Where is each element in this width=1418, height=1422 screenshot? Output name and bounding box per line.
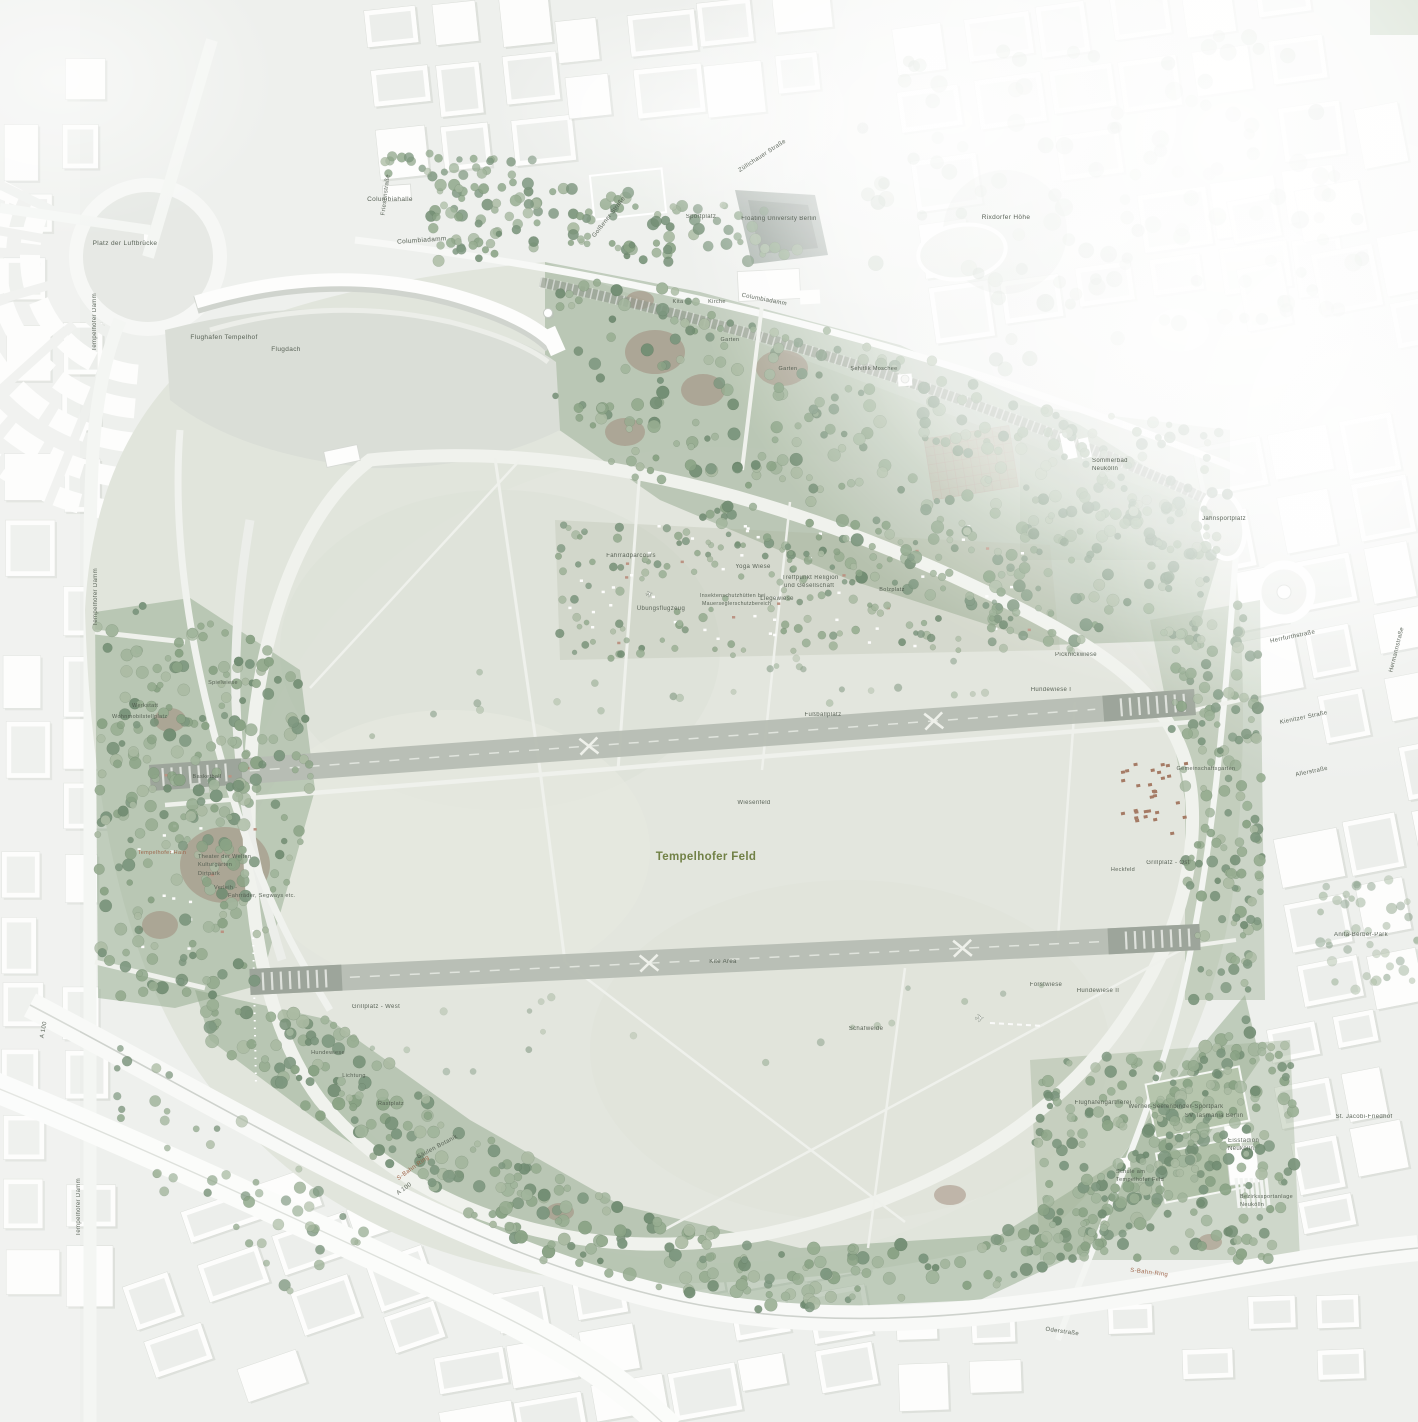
map-label: Wohnmobilstellplatz [112, 714, 167, 720]
map-label: Spielwiese [208, 680, 238, 686]
map-label: St. Jacobi-Friedhof [1335, 1114, 1392, 1120]
map-label: Rastplatz [378, 1101, 404, 1107]
map-label: Yoga Wiese [735, 564, 771, 570]
map-label: Flughafengärtnerei [1075, 1100, 1132, 1106]
map-label: Platz der Luftbrücke [93, 240, 158, 247]
map-label: Kite Area [709, 959, 737, 965]
map-label: Dirtpark [198, 871, 220, 877]
map-label: Bolzplatz [879, 587, 904, 593]
map-label: Fußballplatz [805, 712, 842, 718]
map-label: Sportplatz [686, 214, 717, 220]
map-label: Anita-Berber-Park [1334, 932, 1389, 938]
map-label: Forstwiese [1030, 982, 1063, 988]
map-label: Mauerseglerschutzbereich [702, 601, 771, 607]
map-label: Garten [721, 337, 740, 343]
map-label: Bezirkssportanlage [1240, 1194, 1293, 1200]
map-label: Flugdach [271, 346, 301, 353]
map-label: Flughafen Tempelhof [190, 334, 257, 341]
map-label: Kirche [708, 299, 726, 305]
map-label: Wiesenfeld [737, 800, 770, 806]
map-label: und Gesellschaft [784, 583, 834, 589]
map-label: Treffpunkt Religion [782, 575, 839, 581]
map-label: Floating University Berlin [741, 216, 816, 222]
map-label: Verleih - [214, 885, 237, 891]
map-label: Werner-Seelenbinder-Sportpark [1128, 1104, 1224, 1110]
map-label: Garten [779, 366, 798, 372]
map-label: Grillplatz - West [352, 1004, 400, 1010]
map-label: Picknickwiese [1055, 652, 1097, 658]
location-marker-icon [544, 309, 553, 318]
map-label: Hundewiese [311, 1050, 345, 1056]
map-label: Rixdorfer Höhe [982, 214, 1031, 221]
map-label: Fahrräder, Segways etc. [228, 893, 296, 899]
map-label: Tempelhofer Damm [93, 568, 99, 626]
map-label: Theater der Welten [198, 854, 251, 860]
map-label: Lichtung [342, 1073, 366, 1079]
map-label: Tempelhofer Feld [1116, 1177, 1164, 1183]
map-label: Grillplatz - Ost [1146, 860, 1190, 866]
map-label: Neukölln [1228, 1146, 1254, 1152]
map-canvas: Platz der LuftbrückeColumbiahalleTempelh… [0, 0, 1418, 1422]
map-label: Kita [673, 299, 684, 305]
map-label: Basketball [193, 774, 222, 780]
map-label: Neukölln [1240, 1202, 1264, 1208]
map-label: Fahrradparcours [606, 553, 656, 559]
airplane-icon: ✈ [974, 1012, 985, 1026]
map-label: Gemeinschaftsgarten [1177, 766, 1236, 772]
map-label: SV Tasmania Berlin [1185, 1113, 1244, 1119]
map-label: Hundewiese I [1031, 687, 1072, 693]
map-label: Schule am [1116, 1169, 1145, 1175]
map-label: Columbiahalle [367, 196, 413, 203]
map-label: Jahnsportplatz [1202, 516, 1246, 522]
map-label: Werkstatt [132, 703, 158, 709]
map-label: Hundewiese II [1077, 988, 1120, 994]
map-label: Neukölln [1092, 466, 1118, 472]
map-label: Tempelhofer Damm [92, 293, 98, 351]
map-label: Şehitlik Moschee [850, 366, 897, 372]
map-label: Tempelhofer Damm [76, 1178, 82, 1236]
map-label: Übungsflugzeug [637, 605, 685, 612]
map-label: Tempelhofer Feld [656, 851, 757, 863]
map-label: Heckfeld [1111, 867, 1135, 873]
map-label: Sommerbad [1092, 458, 1128, 464]
map-label: Eisstadion [1228, 1138, 1259, 1144]
map-label: Schafweide [849, 1026, 884, 1032]
map-label: Kulturgärten [198, 862, 232, 868]
map-label: Insektenschutzhütten bei [700, 593, 766, 599]
tempelhof-site-plan: Tempelhofer Feld Platz der LuftbrückeCol… [0, 0, 1418, 1422]
map-label: Tempelhofer Hain [138, 850, 187, 856]
